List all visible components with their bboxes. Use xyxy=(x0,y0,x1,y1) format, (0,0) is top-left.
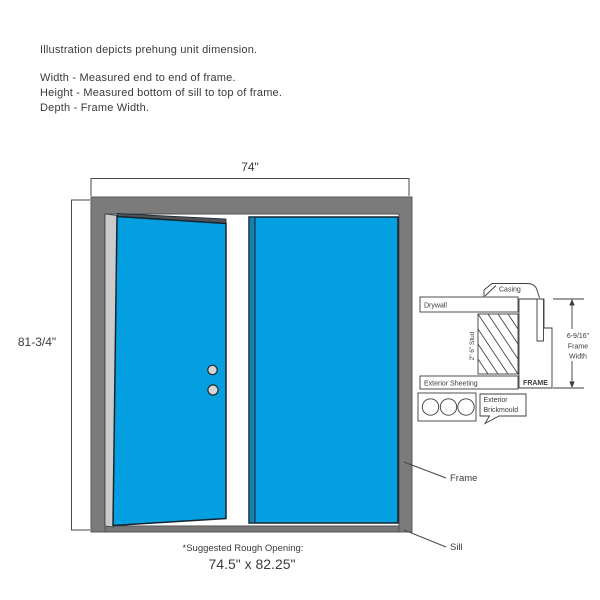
drywall-label: Drywall xyxy=(424,303,447,310)
sill-leader-line xyxy=(404,530,446,547)
height-dimension-bracket xyxy=(72,200,91,530)
width-dimension xyxy=(91,179,409,197)
right-door-panel xyxy=(249,217,398,523)
height-dimension xyxy=(72,200,91,530)
arrow-down-icon xyxy=(569,382,574,389)
height-dimension-label: 81-3/4" xyxy=(18,335,56,349)
brickmould-circles xyxy=(422,399,474,415)
exterior-sheeting-label: Exterior Sheeting xyxy=(424,381,478,388)
brickmould-label-line2: Brickmould xyxy=(484,407,519,414)
right-door-edge xyxy=(249,217,255,523)
door-unit xyxy=(91,197,412,532)
prehung-door-dimension-diagram: Illustration depicts prehung unit dimens… xyxy=(0,0,600,600)
right-door xyxy=(249,217,398,523)
width-dimension-label: 74" xyxy=(241,160,259,174)
frame-profile-label: FRAME xyxy=(523,380,548,387)
left-door xyxy=(105,214,226,528)
rough-opening-note: *Suggested Rough Opening: xyxy=(183,543,304,554)
frame-width-word1: Frame xyxy=(568,344,588,351)
illustration-svg: 74" 81-3/4" xyxy=(0,0,600,600)
frame-width-word2: Width xyxy=(569,354,587,361)
rough-opening-size: 74.5" x 82.25" xyxy=(208,556,295,572)
handle-knob xyxy=(208,385,218,395)
frame-callout: Frame xyxy=(404,462,477,484)
frame-width-value: 6-9/16" xyxy=(567,333,590,340)
sill xyxy=(105,526,399,532)
sill-label: Sill xyxy=(450,542,463,553)
deadbolt-knob xyxy=(208,365,217,374)
sill-callout: Sill xyxy=(404,530,463,553)
brickmould-label-line1: Exterior xyxy=(484,397,509,404)
frame-profile xyxy=(519,299,552,388)
casing-profile-chamfer xyxy=(485,286,496,297)
stud-label: 2" 6" Stud xyxy=(469,331,476,360)
casing-label: Casing xyxy=(499,287,521,294)
frame-label: Frame xyxy=(450,473,477,484)
arrow-up-icon xyxy=(569,299,574,306)
width-dimension-bracket xyxy=(91,179,409,197)
